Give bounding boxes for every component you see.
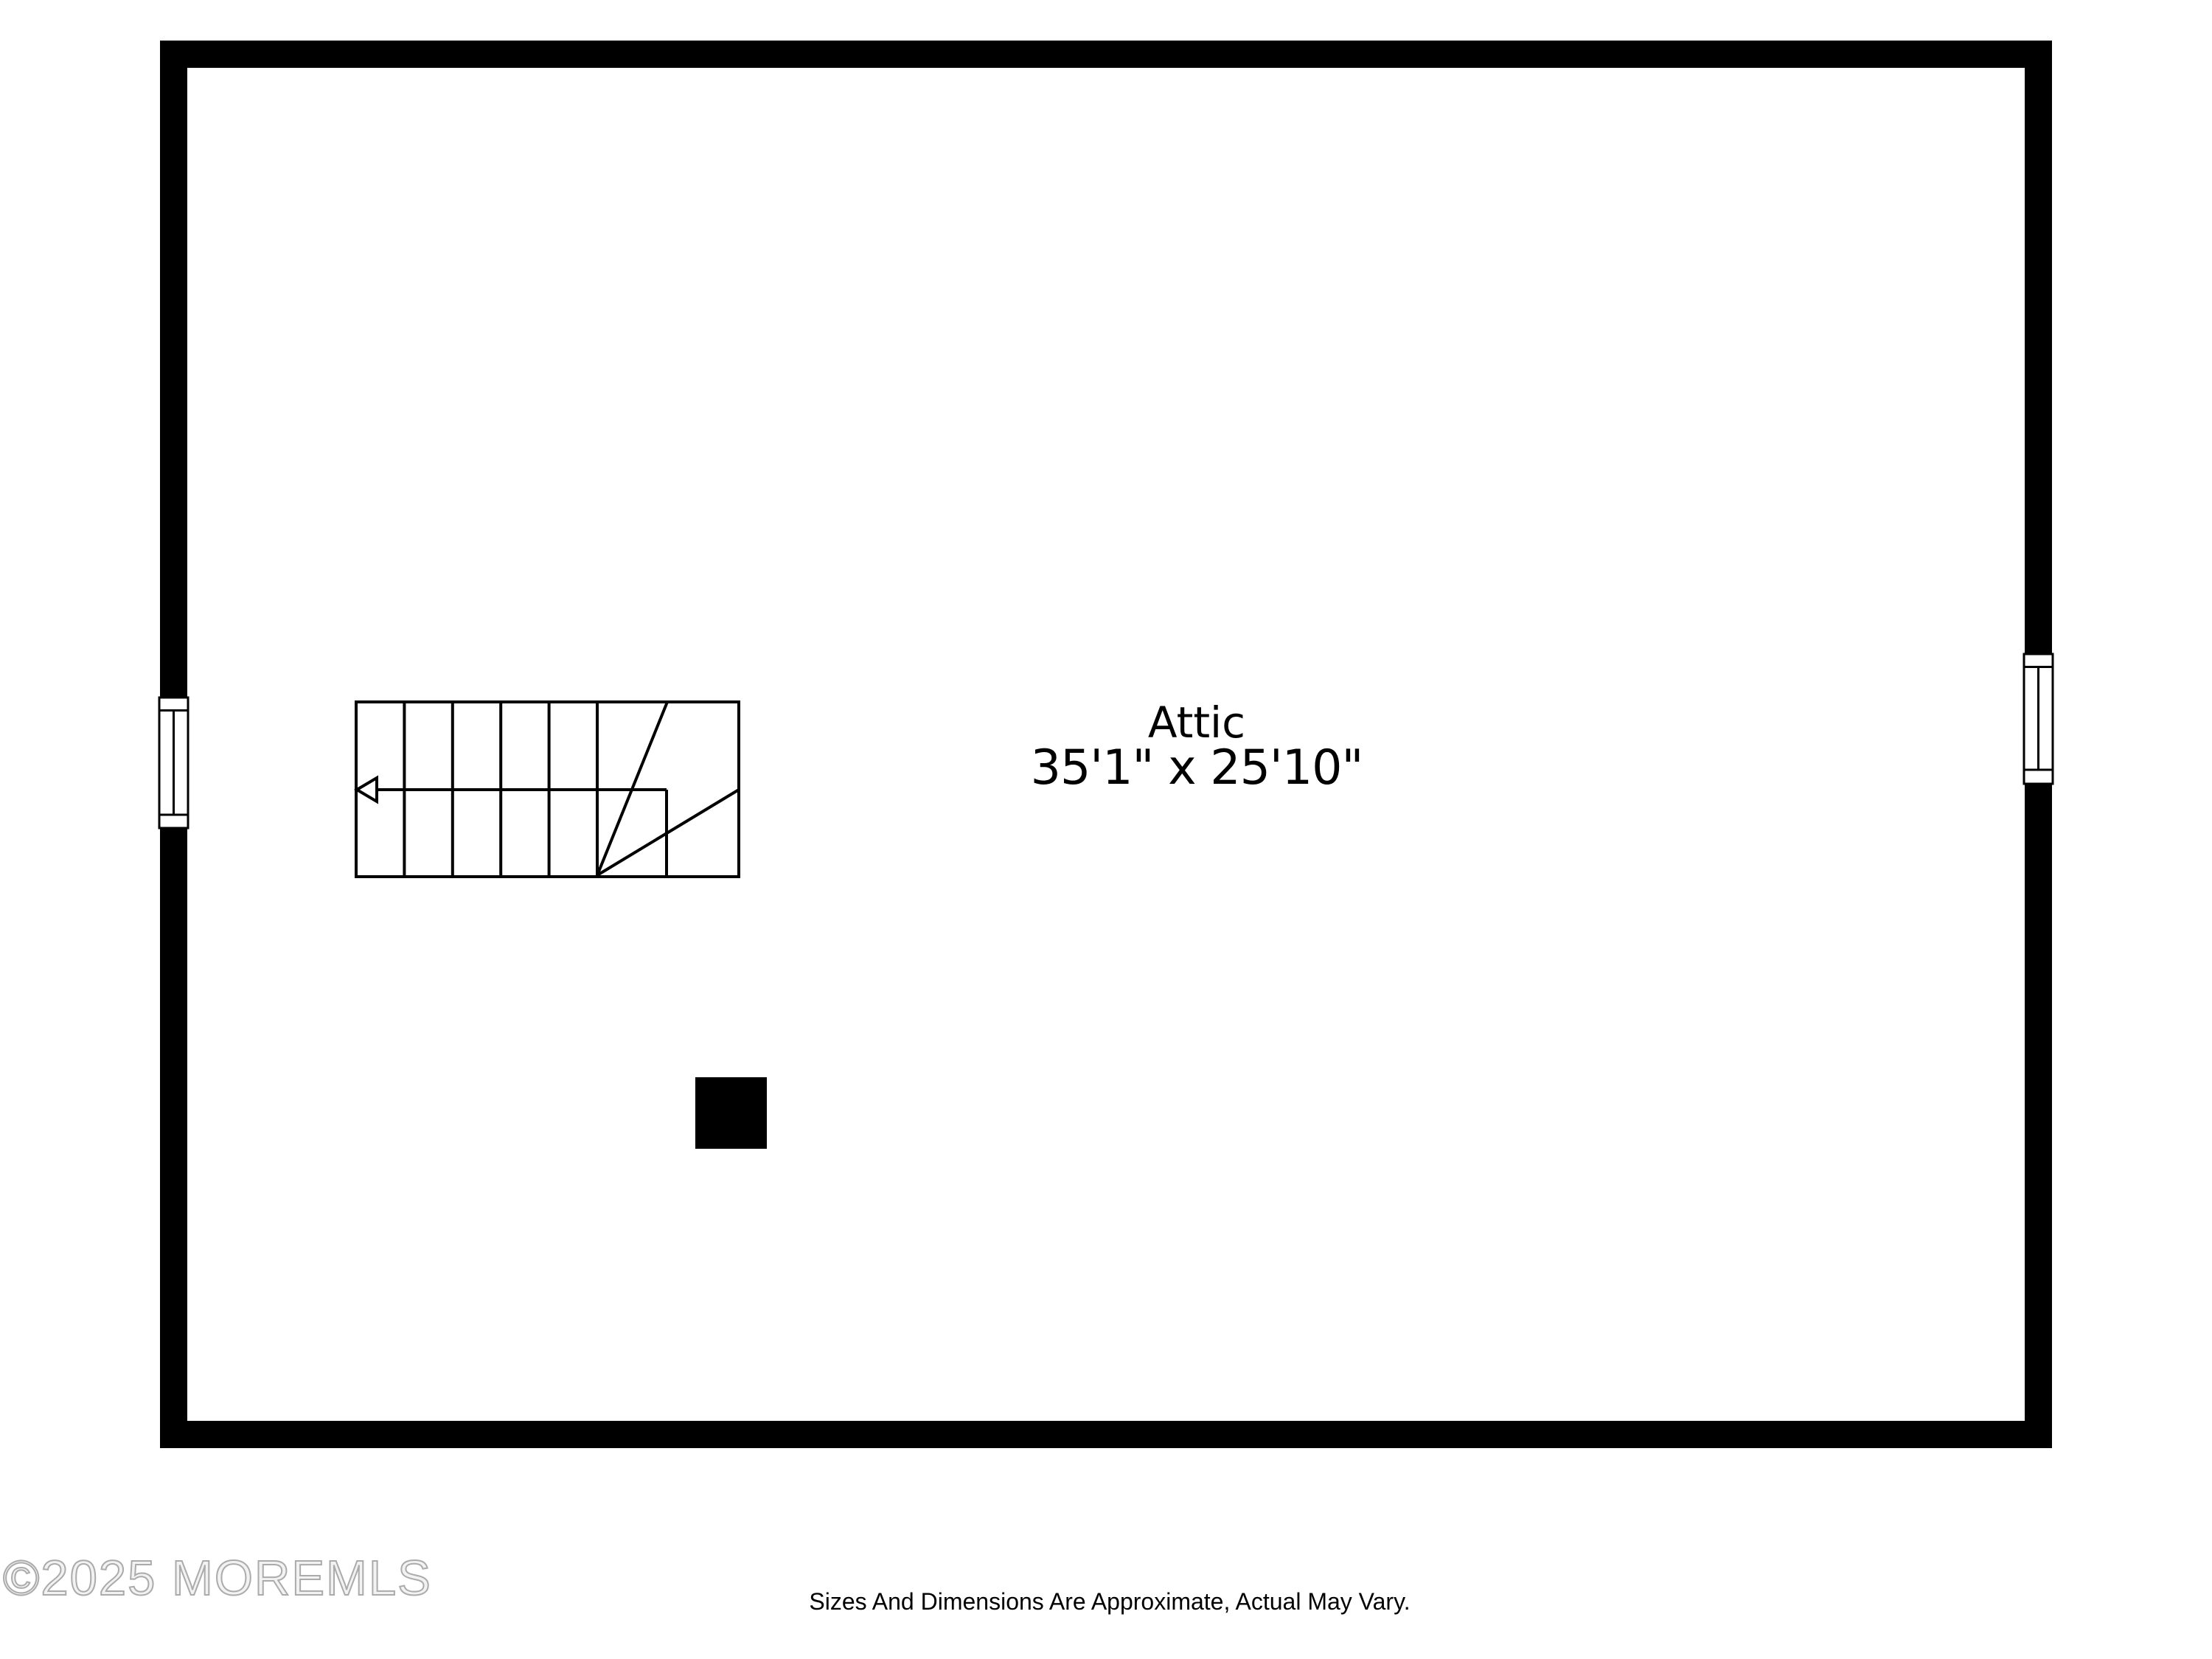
room-dimensions-label: 35'1" x 25'10" (1031, 744, 1363, 792)
staircase (356, 702, 739, 877)
disclaimer-text: Sizes And Dimensions Are Approximate, Ac… (809, 1590, 1410, 1613)
floor-plan-page: Attic 35'1" x 25'10" ©2025 MOREMLS Sizes… (0, 0, 2212, 1659)
chimney (695, 1077, 767, 1149)
watermark: ©2025 MOREMLS (3, 1554, 432, 1603)
window-left (159, 698, 188, 828)
window-right (2024, 654, 2053, 784)
room-name-label: Attic (1148, 701, 1245, 744)
floor-plan-drawing (0, 0, 2212, 1659)
